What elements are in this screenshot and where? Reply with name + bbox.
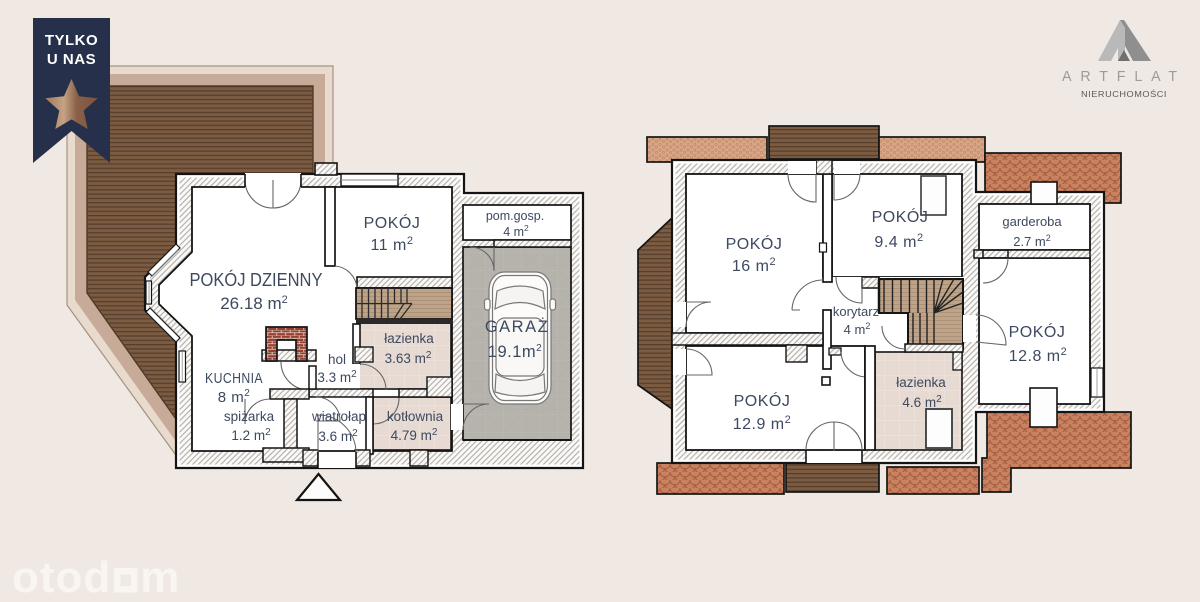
svg-text:otod: otod [12, 553, 111, 602]
svg-text:POKÓJ: POKÓJ [734, 391, 791, 410]
svg-text:POKÓJ: POKÓJ [364, 213, 421, 232]
svg-text:POKÓJ DZIENNY: POKÓJ DZIENNY [190, 269, 323, 290]
svg-text:NIERUCHOMOŚCI: NIERUCHOMOŚCI [1081, 88, 1167, 99]
svg-text:TYLKO: TYLKO [45, 32, 98, 49]
svg-text:4.79 m2: 4.79 m2 [391, 427, 438, 443]
svg-text:POKÓJ: POKÓJ [726, 234, 783, 253]
svg-text:kotłownia: kotłownia [387, 409, 444, 424]
svg-text:m: m [140, 553, 180, 602]
svg-text:GARAŻ: GARAŻ [485, 317, 549, 336]
svg-text:12.9 m2: 12.9 m2 [733, 414, 792, 433]
svg-text:łazienka: łazienka [384, 331, 434, 346]
svg-text:16 m2: 16 m2 [732, 256, 776, 275]
svg-text:korytarz: korytarz [833, 304, 879, 319]
svg-text:POKÓJ: POKÓJ [1009, 322, 1066, 341]
svg-text:łazienka: łazienka [896, 375, 946, 390]
svg-text:hol: hol [328, 352, 346, 367]
svg-text:9.4 m2: 9.4 m2 [874, 232, 923, 251]
svg-text:19.1m2: 19.1m2 [488, 343, 542, 361]
svg-text:ARTFLAT: ARTFLAT [1062, 69, 1186, 85]
svg-text:12.8 m2: 12.8 m2 [1009, 346, 1068, 365]
svg-text:26.18 m2: 26.18 m2 [220, 294, 288, 313]
svg-text:3.63 m2: 3.63 m2 [385, 350, 432, 366]
svg-text:2.7 m2: 2.7 m2 [1013, 233, 1051, 249]
svg-text:POKÓJ: POKÓJ [872, 207, 929, 226]
svg-text:spiżarka: spiżarka [224, 409, 275, 424]
svg-text:U NAS: U NAS [47, 51, 96, 68]
svg-text:garderoba: garderoba [1002, 214, 1062, 229]
svg-text:wiatrołap: wiatrołap [311, 409, 366, 424]
svg-text:pom.gosp.: pom.gosp. [486, 209, 544, 223]
svg-text:KUCHNIA: KUCHNIA [205, 370, 263, 387]
